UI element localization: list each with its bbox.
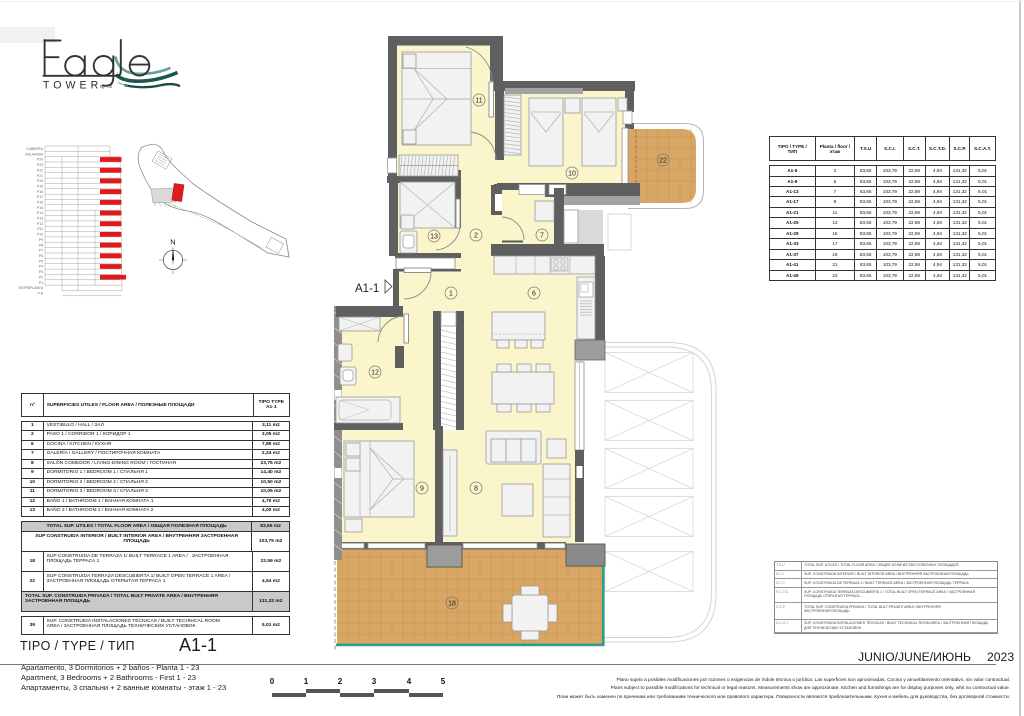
svg-text:A1-1: A1-1: [355, 283, 379, 295]
svg-text:4: 4: [407, 677, 412, 686]
svg-text:10: 10: [568, 171, 576, 178]
svg-text:6: 6: [532, 291, 536, 298]
svg-text:1: 1: [304, 677, 309, 686]
svg-text:13: 13: [430, 234, 438, 241]
svg-text:1: 1: [449, 291, 453, 298]
svg-text:0: 0: [270, 677, 275, 686]
svg-text:2: 2: [474, 233, 478, 240]
svg-text:5: 5: [441, 677, 446, 686]
svg-text:11: 11: [475, 98, 482, 105]
svg-text:8: 8: [474, 486, 478, 493]
svg-text:3: 3: [372, 677, 377, 686]
svg-text:22: 22: [659, 158, 667, 165]
svg-text:12: 12: [371, 370, 379, 377]
svg-text:9: 9: [420, 486, 424, 493]
svg-text:7: 7: [540, 233, 544, 240]
svg-text:2: 2: [338, 677, 343, 686]
svg-text:18: 18: [448, 601, 456, 608]
